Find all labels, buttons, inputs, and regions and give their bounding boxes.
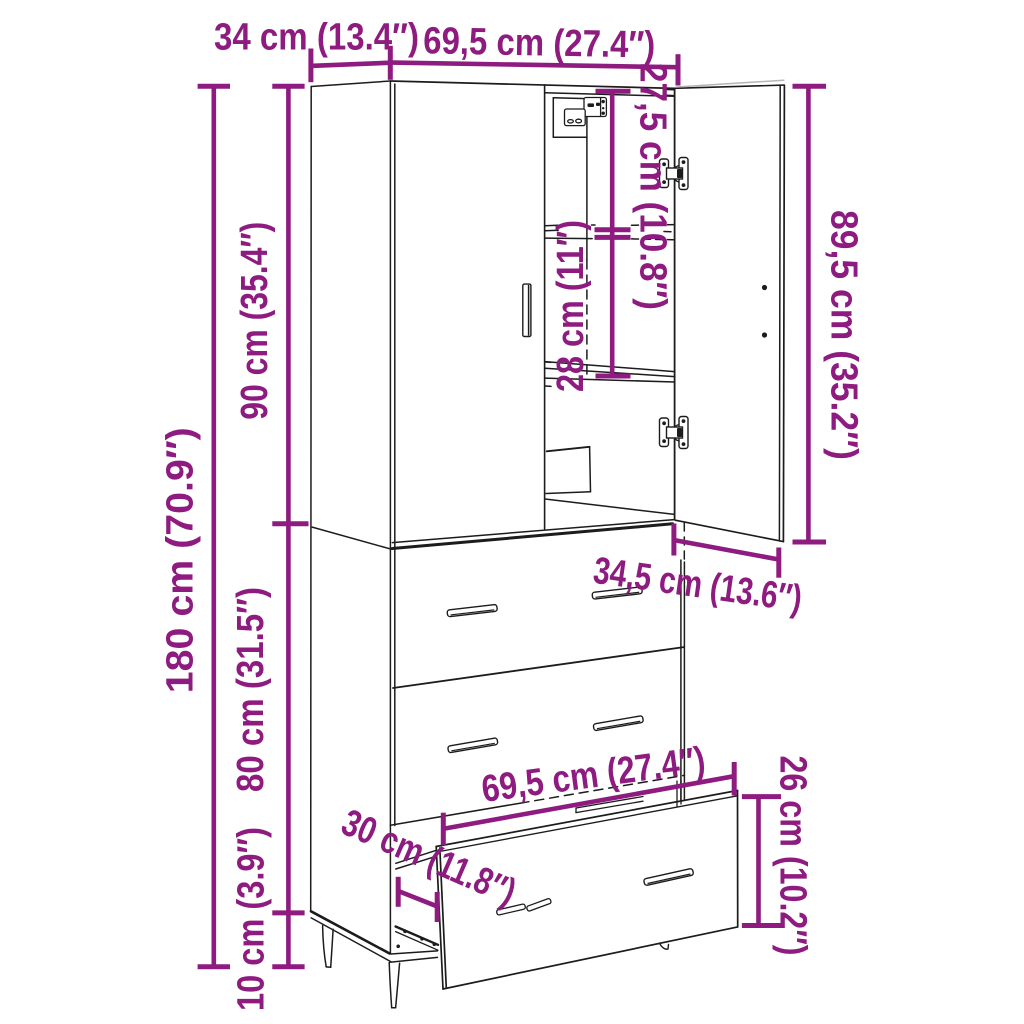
svg-text:10 cm (3.9″): 10 cm (3.9″) bbox=[231, 827, 273, 1011]
svg-text:69,5 cm (27.4″): 69,5 cm (27.4″) bbox=[423, 20, 656, 66]
svg-text:27,5 cm (10.8″): 27,5 cm (10.8″) bbox=[632, 63, 674, 310]
svg-text:89,5 cm (35.2″): 89,5 cm (35.2″) bbox=[823, 210, 865, 460]
svg-text:28 cm (11″): 28 cm (11″) bbox=[550, 220, 592, 392]
svg-text:80 cm (31.5″): 80 cm (31.5″) bbox=[230, 587, 272, 792]
svg-text:90 cm (35.4″): 90 cm (35.4″) bbox=[234, 222, 276, 420]
svg-text:180 cm (70.9″): 180 cm (70.9″) bbox=[159, 427, 201, 693]
svg-text:34 cm (13.4″): 34 cm (13.4″) bbox=[214, 17, 419, 59]
svg-text:26 cm (10.2″): 26 cm (10.2″) bbox=[772, 756, 814, 956]
